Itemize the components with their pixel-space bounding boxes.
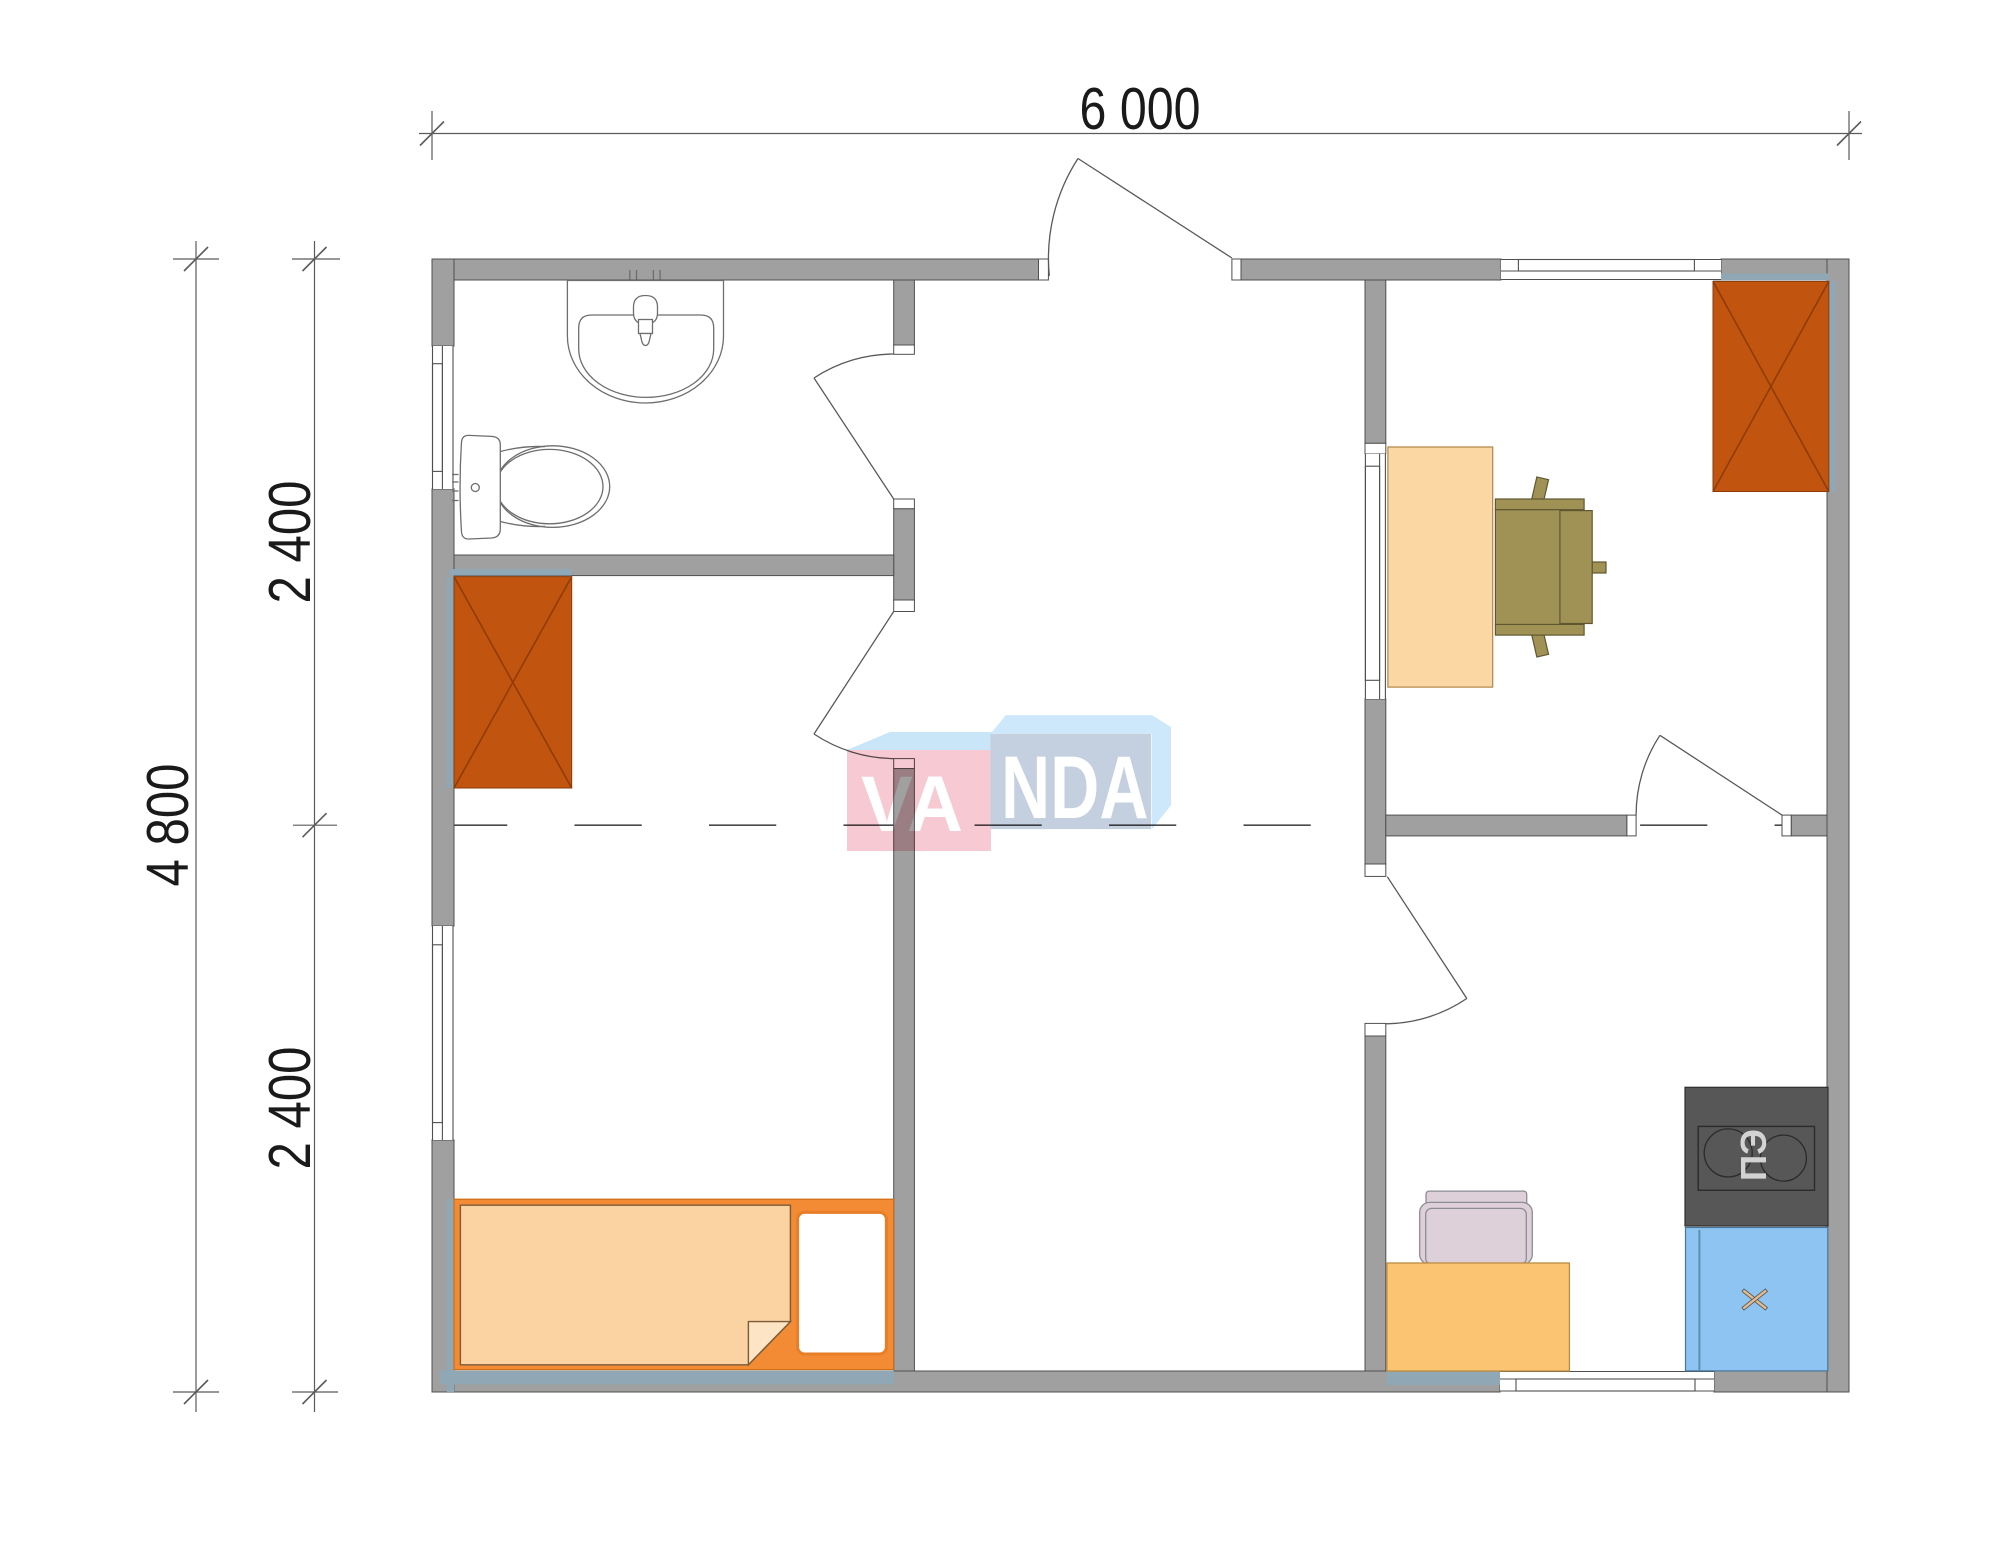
svg-text:2 400: 2 400 xyxy=(257,1047,323,1170)
svg-text:2 400: 2 400 xyxy=(257,481,323,604)
svg-text:4 800: 4 800 xyxy=(135,764,201,887)
svg-text:ПЭ: ПЭ xyxy=(1733,1129,1774,1181)
svg-text:6 000: 6 000 xyxy=(1080,76,1201,142)
